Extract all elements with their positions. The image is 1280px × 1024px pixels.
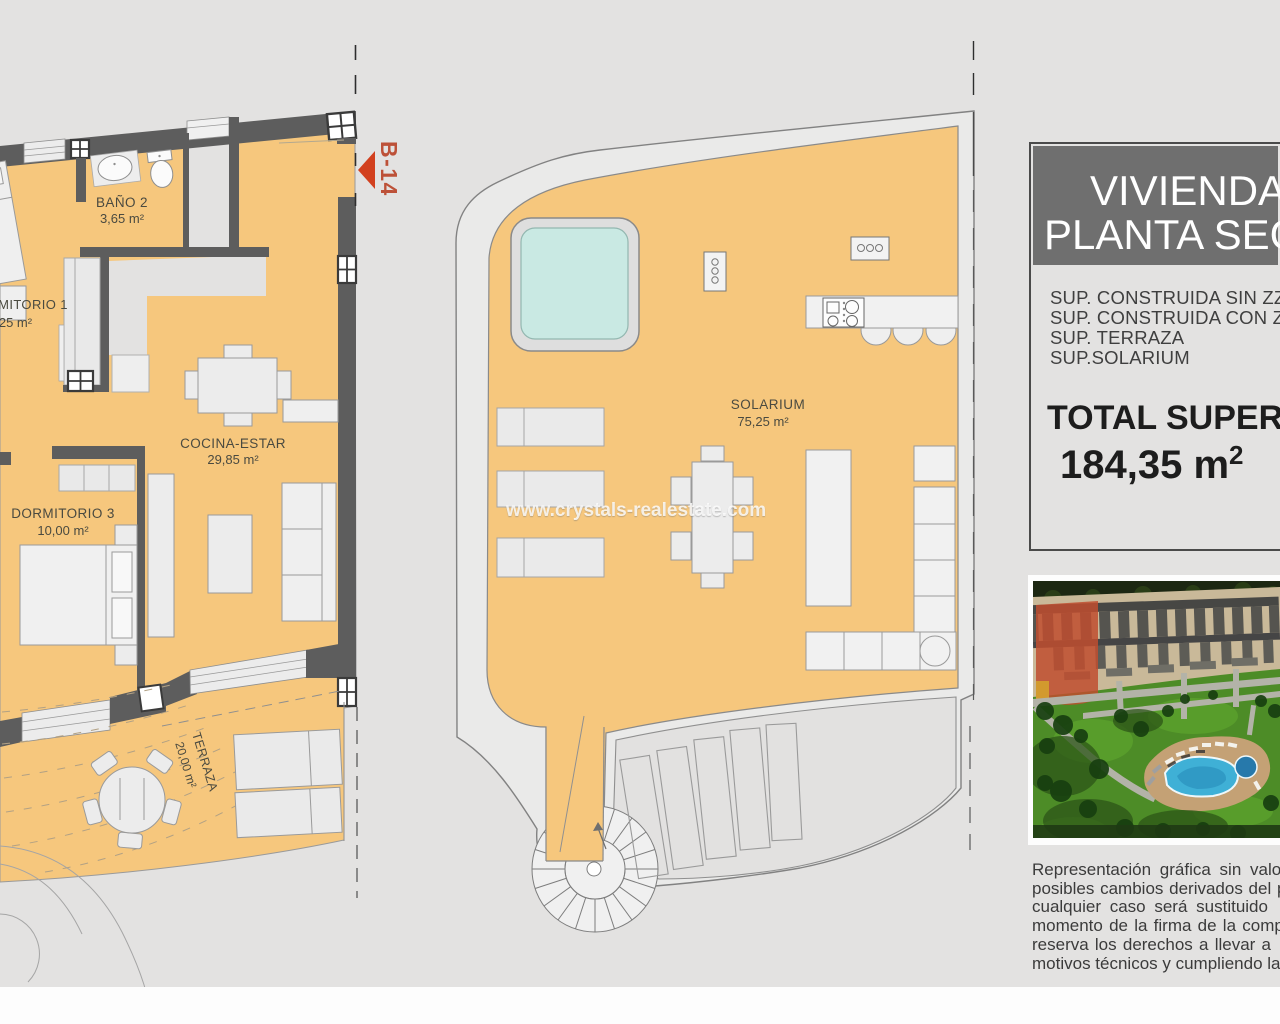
svg-text:DORMITORIO 3: DORMITORIO 3: [11, 506, 115, 521]
svg-text:SOLARIUM: SOLARIUM: [731, 397, 806, 412]
svg-text:3,65 m²: 3,65 m²: [100, 211, 145, 226]
svg-text:75,25 m²: 75,25 m²: [737, 414, 789, 429]
svg-text:COCINA-ESTAR: COCINA-ESTAR: [180, 436, 286, 451]
svg-text:B-14: B-14: [376, 141, 402, 197]
svg-text:10,00 m²: 10,00 m²: [37, 523, 89, 538]
svg-text:DORMITORIO 1: DORMITORIO 1: [0, 297, 68, 312]
svg-text:8,25 m²: 8,25 m²: [0, 315, 33, 330]
svg-text:29,85 m²: 29,85 m²: [207, 452, 259, 467]
svg-text:BAÑO 2: BAÑO 2: [96, 195, 148, 210]
